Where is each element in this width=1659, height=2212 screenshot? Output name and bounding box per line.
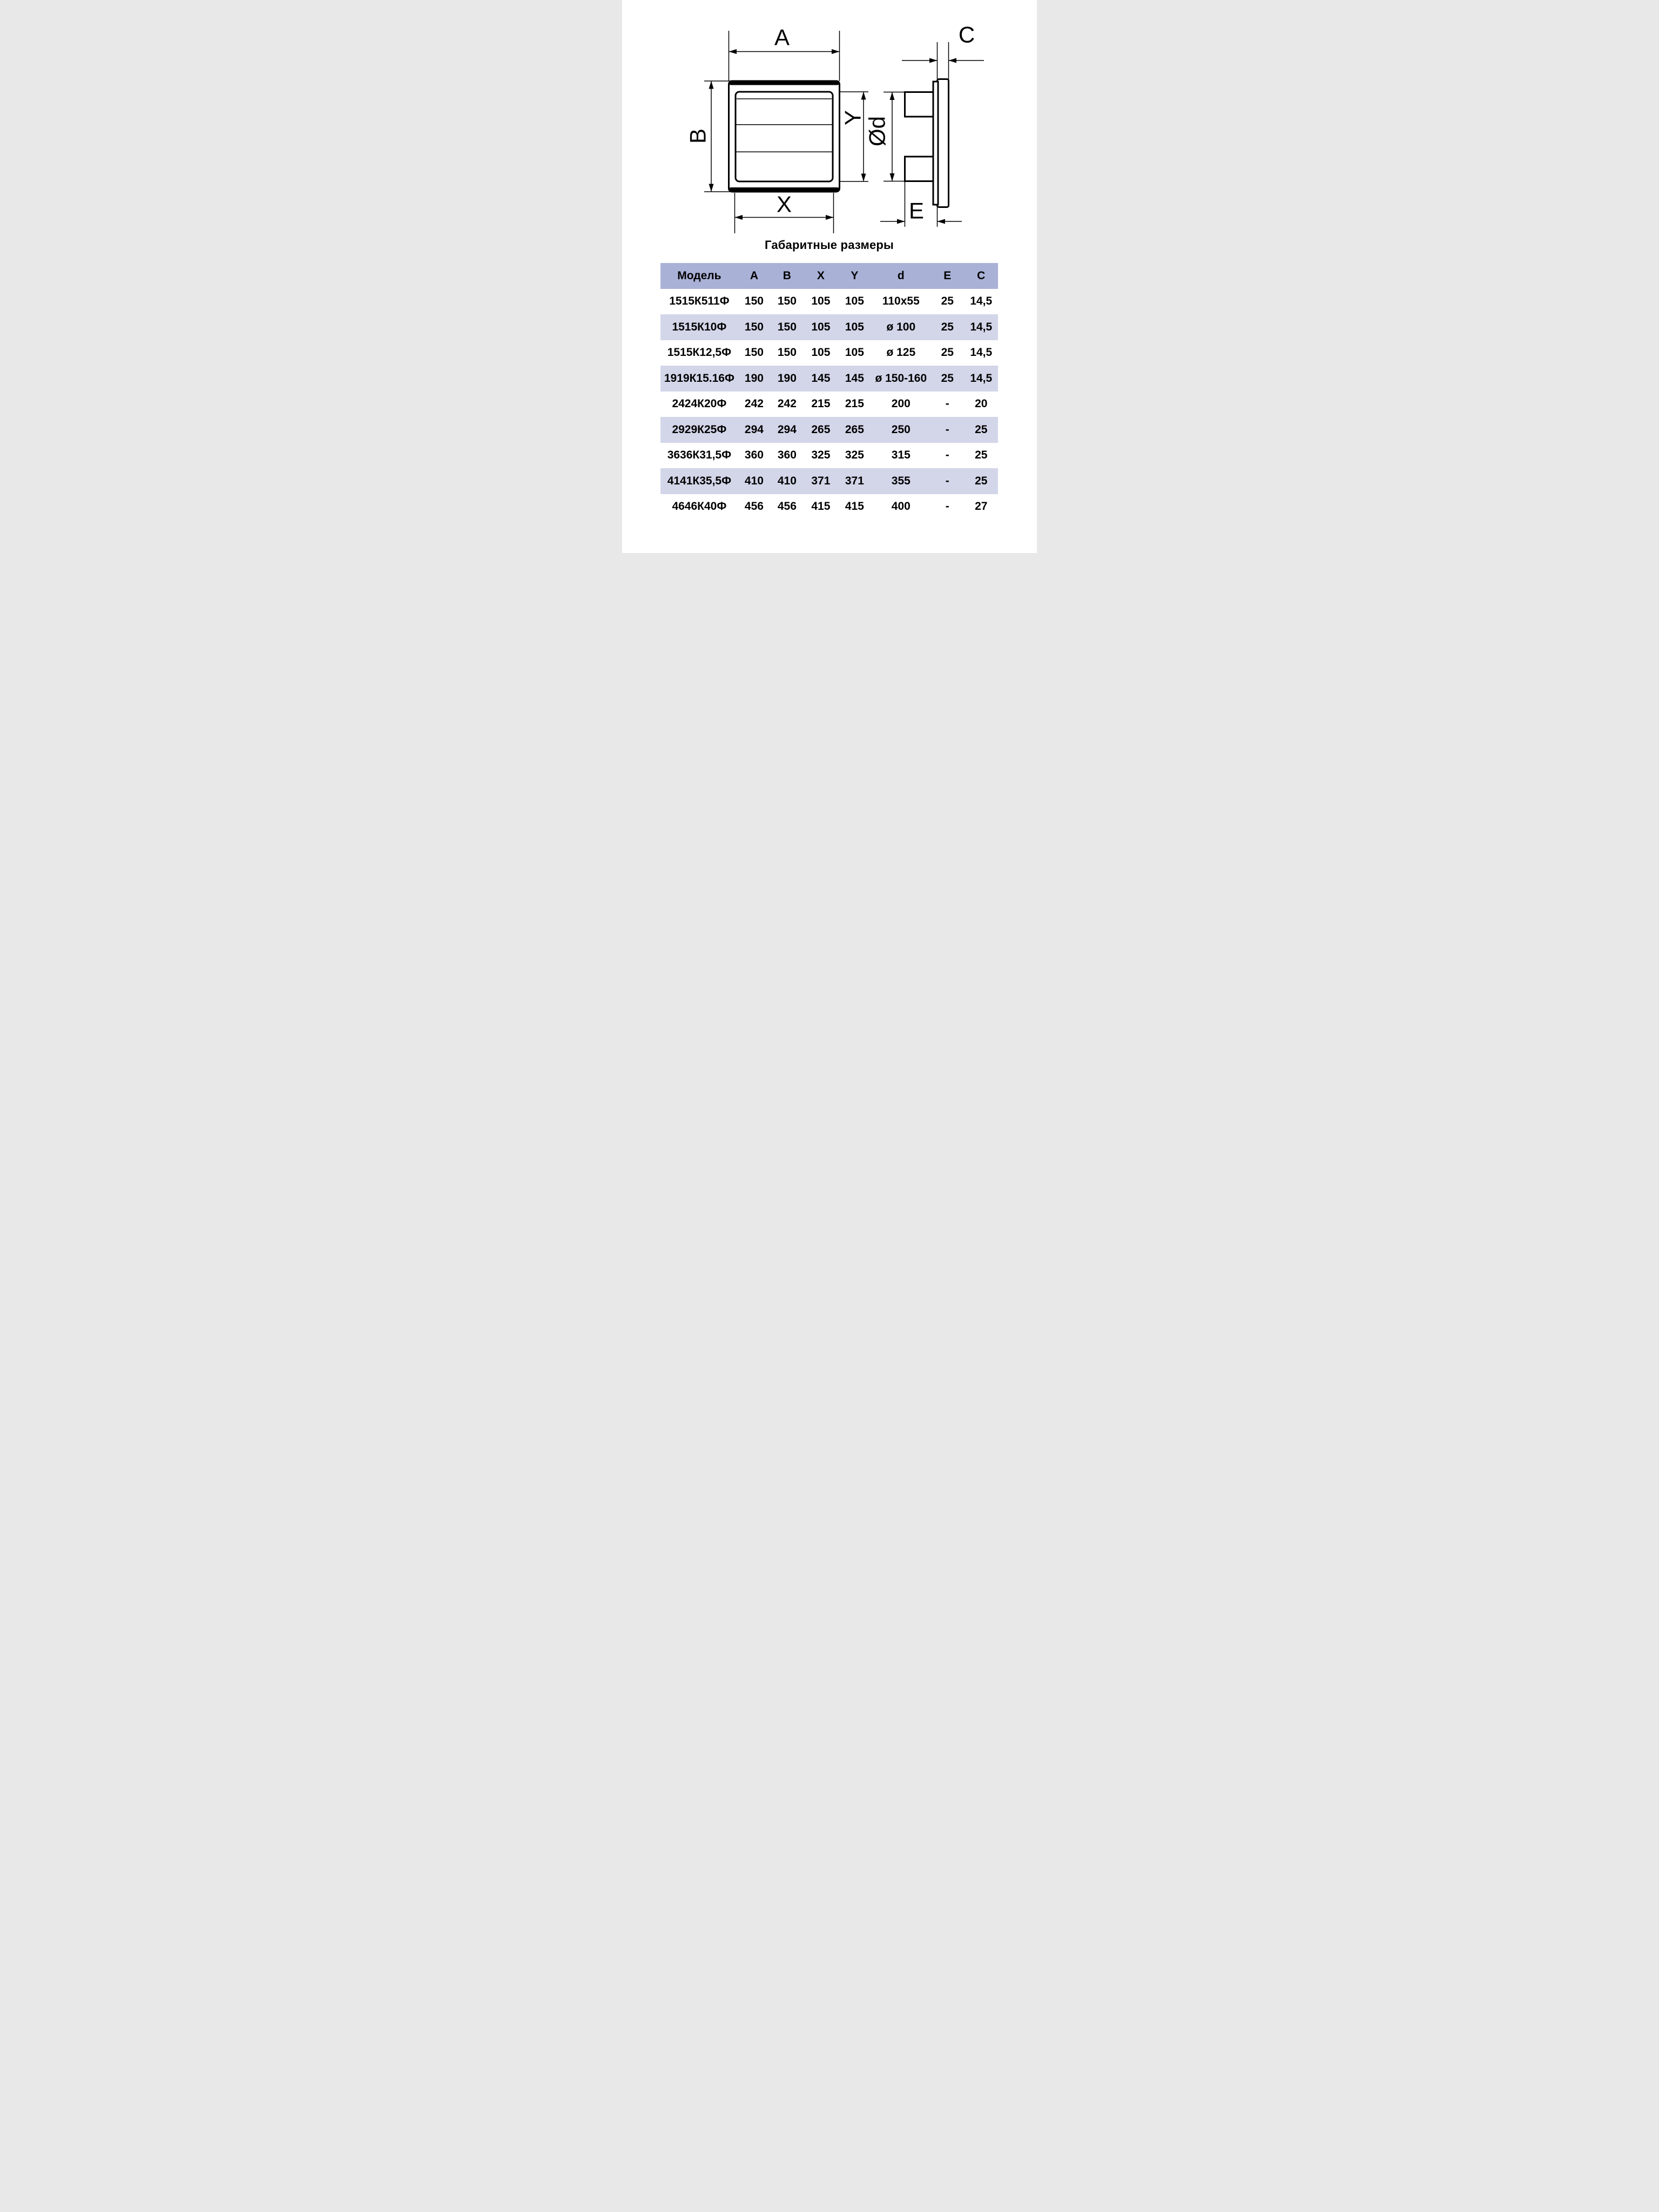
value-cell: 150 — [770, 340, 804, 366]
model-cell: 1515К12,5Ф — [660, 340, 738, 366]
value-cell: 105 — [838, 314, 872, 340]
value-cell: 325 — [838, 443, 872, 469]
dimension-label-b: B — [685, 129, 711, 144]
value-cell: 215 — [838, 392, 872, 417]
model-cell: 4141К35,5Ф — [660, 468, 738, 494]
dimension-E: E — [880, 181, 962, 227]
value-cell: 150 — [738, 340, 770, 366]
column-header-c: C — [965, 263, 999, 289]
value-cell: 105 — [838, 340, 872, 366]
column-header-model: Модель — [660, 263, 738, 289]
model-cell: 2424К20Ф — [660, 392, 738, 417]
value-cell: 14,5 — [965, 340, 999, 366]
value-cell: - — [930, 392, 965, 417]
value-cell: 20 — [965, 392, 999, 417]
column-header-b: B — [770, 263, 804, 289]
value-cell: 355 — [872, 468, 930, 494]
dimensions-table: МодельABXYdEC1515К511Ф150150105105110x55… — [660, 263, 998, 520]
value-cell: 294 — [738, 417, 770, 443]
dimension-diameter: Ød — [865, 92, 934, 181]
value-cell: ø 125 — [872, 340, 930, 366]
value-cell: 200 — [872, 392, 930, 417]
dimension-label-diameter: Ød — [865, 116, 890, 146]
value-cell: 325 — [804, 443, 838, 469]
value-cell: 250 — [872, 417, 930, 443]
frame-plate-profile — [938, 79, 949, 207]
column-header-x: X — [804, 263, 838, 289]
dimension-label-c: C — [959, 22, 975, 48]
datasheet-page: A B X — [622, 0, 1037, 553]
value-cell: 25 — [930, 289, 965, 315]
column-header-a: A — [738, 263, 770, 289]
grille-frame-top-bar — [729, 80, 840, 85]
value-cell: 14,5 — [965, 366, 999, 392]
value-cell: 110x55 — [872, 289, 930, 315]
value-cell: 14,5 — [965, 289, 999, 315]
column-header-d: d — [872, 263, 930, 289]
value-cell: 410 — [738, 468, 770, 494]
value-cell: 145 — [838, 366, 872, 392]
value-cell: 371 — [838, 468, 872, 494]
value-cell: 25 — [930, 314, 965, 340]
column-header-e: E — [930, 263, 965, 289]
value-cell: 145 — [804, 366, 838, 392]
value-cell: 25 — [965, 443, 999, 469]
value-cell: 456 — [770, 494, 804, 520]
model-cell: 1515К511Ф — [660, 289, 738, 315]
value-cell: 265 — [804, 417, 838, 443]
value-cell: - — [930, 443, 965, 469]
value-cell: 360 — [738, 443, 770, 469]
dimension-X: X — [735, 192, 834, 234]
louver-panel — [736, 92, 833, 181]
value-cell: 25 — [965, 468, 999, 494]
model-cell: 1919К15.16Ф — [660, 366, 738, 392]
value-cell: 371 — [804, 468, 838, 494]
model-cell: 3636К31,5Ф — [660, 443, 738, 469]
value-cell: 242 — [738, 392, 770, 417]
value-cell: - — [930, 417, 965, 443]
value-cell: 25 — [965, 417, 999, 443]
model-cell: 1515К10Ф — [660, 314, 738, 340]
value-cell: 105 — [804, 340, 838, 366]
value-cell: 105 — [804, 289, 838, 315]
dimension-drawing: A B X — [622, 0, 1037, 248]
value-cell: 456 — [738, 494, 770, 520]
dimension-label-x: X — [777, 192, 792, 217]
value-cell: 190 — [738, 366, 770, 392]
value-cell: 242 — [770, 392, 804, 417]
table-title: Габаритные размеры — [660, 238, 998, 252]
value-cell: 415 — [804, 494, 838, 520]
frame-front-lip — [933, 82, 938, 205]
front-view — [729, 80, 840, 192]
value-cell: 150 — [738, 289, 770, 315]
value-cell: 14,5 — [965, 314, 999, 340]
value-cell: 150 — [738, 314, 770, 340]
dimension-A: A — [729, 25, 840, 82]
value-cell: 400 — [872, 494, 930, 520]
value-cell: 315 — [872, 443, 930, 469]
model-cell: 2929К25Ф — [660, 417, 738, 443]
value-cell: 105 — [838, 289, 872, 315]
dimension-C: C — [902, 22, 984, 79]
value-cell: ø 100 — [872, 314, 930, 340]
value-cell: 190 — [770, 366, 804, 392]
side-view — [905, 79, 949, 207]
dimension-label-e: E — [909, 198, 924, 224]
dimension-B: B — [685, 81, 731, 192]
value-cell: 360 — [770, 443, 804, 469]
model-cell: 4646К40Ф — [660, 494, 738, 520]
dimension-label-y: Y — [840, 110, 866, 125]
duct-spigot-bottom — [905, 157, 934, 181]
value-cell: 150 — [770, 289, 804, 315]
value-cell: 105 — [804, 314, 838, 340]
value-cell: 410 — [770, 468, 804, 494]
value-cell: - — [930, 468, 965, 494]
value-cell: 27 — [965, 494, 999, 520]
value-cell: 215 — [804, 392, 838, 417]
value-cell: 150 — [770, 314, 804, 340]
value-cell: 25 — [930, 340, 965, 366]
value-cell: 415 — [838, 494, 872, 520]
dimension-label-a: A — [774, 25, 790, 50]
value-cell: 294 — [770, 417, 804, 443]
column-header-y: Y — [838, 263, 872, 289]
value-cell: - — [930, 494, 965, 520]
value-cell: ø 150-160 — [872, 366, 930, 392]
value-cell: 265 — [838, 417, 872, 443]
value-cell: 25 — [930, 366, 965, 392]
duct-spigot-top — [905, 92, 934, 117]
